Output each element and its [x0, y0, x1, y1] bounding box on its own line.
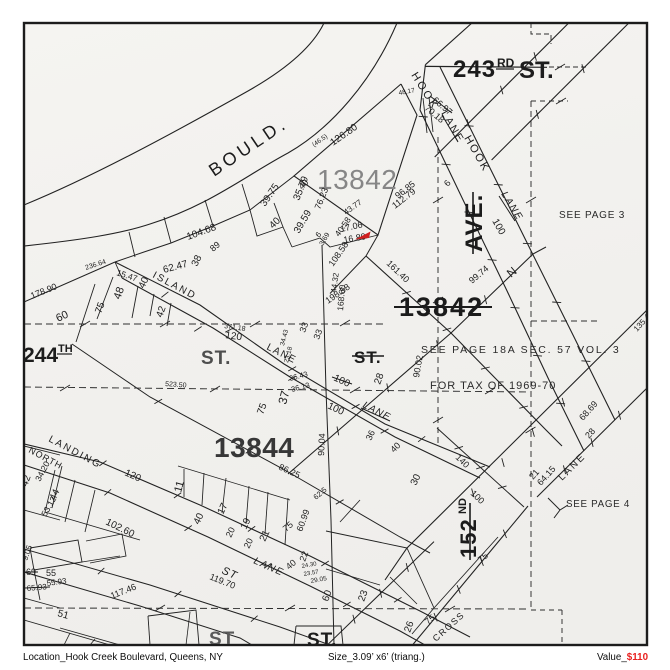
- svg-text:SEE PAGE 4: SEE PAGE 4: [566, 499, 630, 510]
- svg-text:ST.: ST.: [354, 348, 382, 367]
- svg-text:AVE.: AVE.: [461, 194, 488, 252]
- svg-text:Location_Hook Creek Boulevard,: Location_Hook Creek Boulevard, Queens, N…: [23, 652, 223, 663]
- svg-text:SEE PAGE 3: SEE PAGE 3: [559, 210, 625, 221]
- svg-text:ST.: ST.: [519, 57, 554, 84]
- svg-text:ND: ND: [457, 498, 469, 514]
- svg-text:244: 244: [23, 344, 58, 367]
- svg-text:243: 243: [453, 56, 496, 83]
- svg-text:RD: RD: [497, 56, 515, 70]
- svg-text:Value_$110: Value_$110: [597, 652, 649, 663]
- svg-text:523.50: 523.50: [165, 381, 187, 389]
- svg-text:ST.: ST.: [201, 348, 231, 369]
- svg-text:SEE PAGE 18A SEC. 57 VOL. 3: SEE PAGE 18A SEC. 57 VOL. 3: [421, 344, 621, 356]
- svg-text:90.04: 90.04: [316, 433, 327, 456]
- svg-text:13844: 13844: [214, 432, 294, 463]
- svg-text:TH: TH: [58, 343, 73, 355]
- svg-text:Size_3.09’ x6’ (triang.): Size_3.09’ x6’ (triang.): [328, 652, 425, 663]
- svg-text:55: 55: [46, 568, 56, 578]
- svg-text:FOR TAX OF 1969-70: FOR TAX OF 1969-70: [430, 380, 556, 392]
- svg-text:152: 152: [456, 518, 481, 558]
